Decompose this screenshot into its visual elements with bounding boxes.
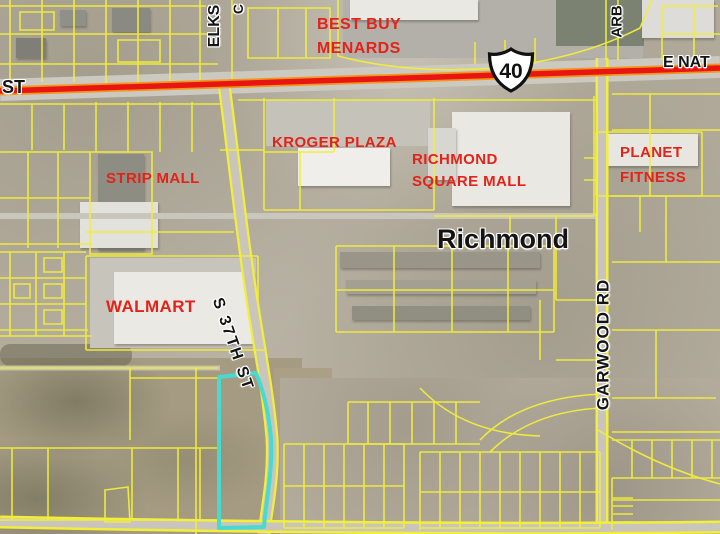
label-street-e-national: E NAT: [663, 55, 710, 71]
label-street-elks: ELKS: [207, 1, 223, 51]
shield-route-number: 40: [499, 60, 522, 83]
label-kroger-plaza: KROGER PLAZA: [272, 135, 397, 150]
label-richmond-square-line1: RICHMOND: [412, 152, 498, 167]
aerial-parcel-map: 40 BEST BUY MENARDS KROGER PLAZA RICHMON…: [0, 0, 720, 534]
label-best-buy: BEST BUY: [317, 17, 401, 33]
label-street-elks-c: C: [231, 0, 245, 19]
label-strip-mall: STRIP MALL: [106, 171, 200, 186]
label-menards: MENARDS: [317, 41, 401, 57]
label-walmart: WALMART: [106, 298, 196, 315]
label-city-richmond: Richmond: [437, 226, 569, 253]
map-overlay-lines: [0, 0, 720, 534]
label-street-garwood: GARWOOD RD: [595, 260, 612, 430]
label-street-st: ST: [2, 78, 25, 96]
label-richmond-square-line2: SQUARE MALL: [412, 174, 526, 189]
label-street-arba: ARB: [610, 0, 625, 47]
label-planet-line1: PLANET: [620, 145, 682, 160]
label-planet-line2: FITNESS: [620, 170, 686, 185]
us-route-40-shield: 40: [486, 46, 536, 94]
